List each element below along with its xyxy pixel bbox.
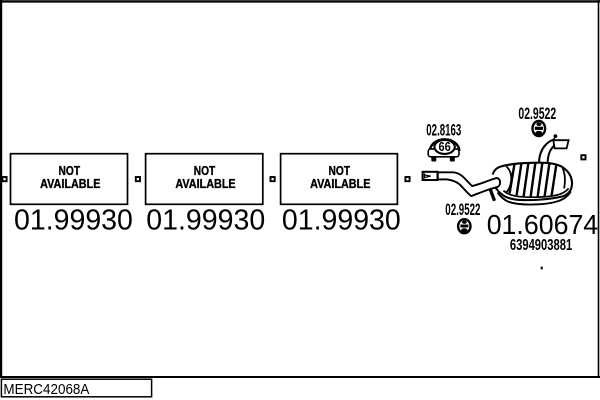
svg-text:NOT: NOT xyxy=(194,164,216,178)
svg-text:02.9522: 02.9522 xyxy=(445,200,480,219)
svg-text:01.99930: 01.99930 xyxy=(282,205,401,237)
svg-text:AVAILABLE: AVAILABLE xyxy=(310,177,370,191)
svg-text:NOT: NOT xyxy=(329,164,351,178)
svg-text:6394903881: 6394903881 xyxy=(510,237,573,254)
svg-text:01.99930: 01.99930 xyxy=(146,205,265,237)
svg-text:66: 66 xyxy=(439,140,451,154)
svg-text:01.99930: 01.99930 xyxy=(14,205,133,237)
svg-text:02.8163: 02.8163 xyxy=(426,121,461,140)
svg-text:NOT: NOT xyxy=(59,164,81,178)
svg-text:AVAILABLE: AVAILABLE xyxy=(175,177,235,191)
svg-text:MERC42068A: MERC42068A xyxy=(3,382,89,398)
svg-text:AVAILABLE: AVAILABLE xyxy=(40,177,100,191)
svg-text:01.60674: 01.60674 xyxy=(487,209,599,240)
